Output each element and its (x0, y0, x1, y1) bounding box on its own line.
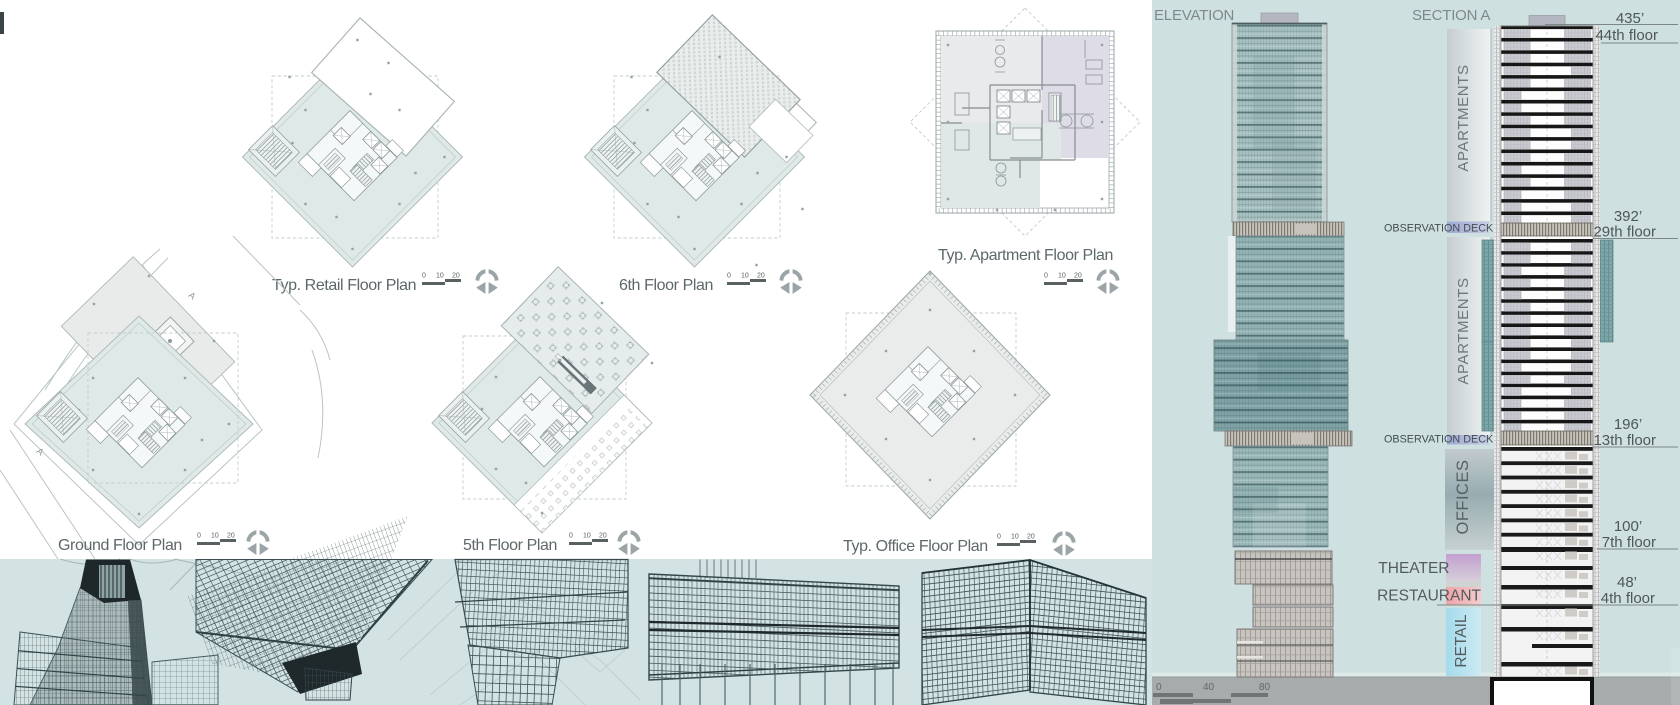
svg-text:4th floor: 4th floor (1601, 590, 1655, 607)
svg-text:OBSERVATION DECK: OBSERVATION DECK (1384, 223, 1494, 235)
svg-text:392’: 392’ (1614, 208, 1642, 225)
svg-text:RETAIL: RETAIL (1453, 614, 1470, 667)
svg-text:APARTMENTS: APARTMENTS (1455, 64, 1472, 171)
svg-text:196’: 196’ (1614, 416, 1642, 433)
svg-text:100’: 100’ (1614, 518, 1642, 535)
svg-text:APARTMENTS: APARTMENTS (1455, 277, 1472, 384)
svg-text:5th Floor Plan: 5th Floor Plan (463, 537, 557, 554)
svg-text:RESTAURANT: RESTAURANT (1377, 588, 1481, 605)
svg-text:40: 40 (1203, 682, 1215, 693)
svg-text:OFFICES: OFFICES (1454, 459, 1472, 534)
svg-text:80: 80 (1259, 682, 1271, 693)
svg-text:OBSERVATION DECK: OBSERVATION DECK (1384, 434, 1494, 446)
svg-text:SECTION A: SECTION A (1412, 7, 1490, 24)
svg-text:48’: 48’ (1617, 574, 1637, 591)
svg-text:435’: 435’ (1616, 10, 1644, 27)
svg-text:Typ. Office Floor Plan: Typ. Office Floor Plan (843, 538, 988, 555)
svg-text:6th Floor Plan: 6th Floor Plan (619, 277, 713, 294)
svg-text:13th floor: 13th floor (1593, 432, 1656, 449)
svg-text:ELEVATION: ELEVATION (1154, 7, 1234, 24)
svg-text:0: 0 (1156, 682, 1162, 693)
svg-text:7th floor: 7th floor (1602, 534, 1656, 551)
svg-text:44th floor: 44th floor (1595, 27, 1658, 44)
svg-text:Typ. Apartment Floor Plan: Typ. Apartment Floor Plan (938, 247, 1113, 264)
svg-text:Ground Floor Plan: Ground Floor Plan (58, 537, 182, 554)
svg-text:Typ. Retail Floor Plan: Typ. Retail Floor Plan (272, 277, 416, 294)
svg-text:THEATER: THEATER (1378, 560, 1449, 577)
svg-text:29th floor: 29th floor (1593, 224, 1656, 241)
